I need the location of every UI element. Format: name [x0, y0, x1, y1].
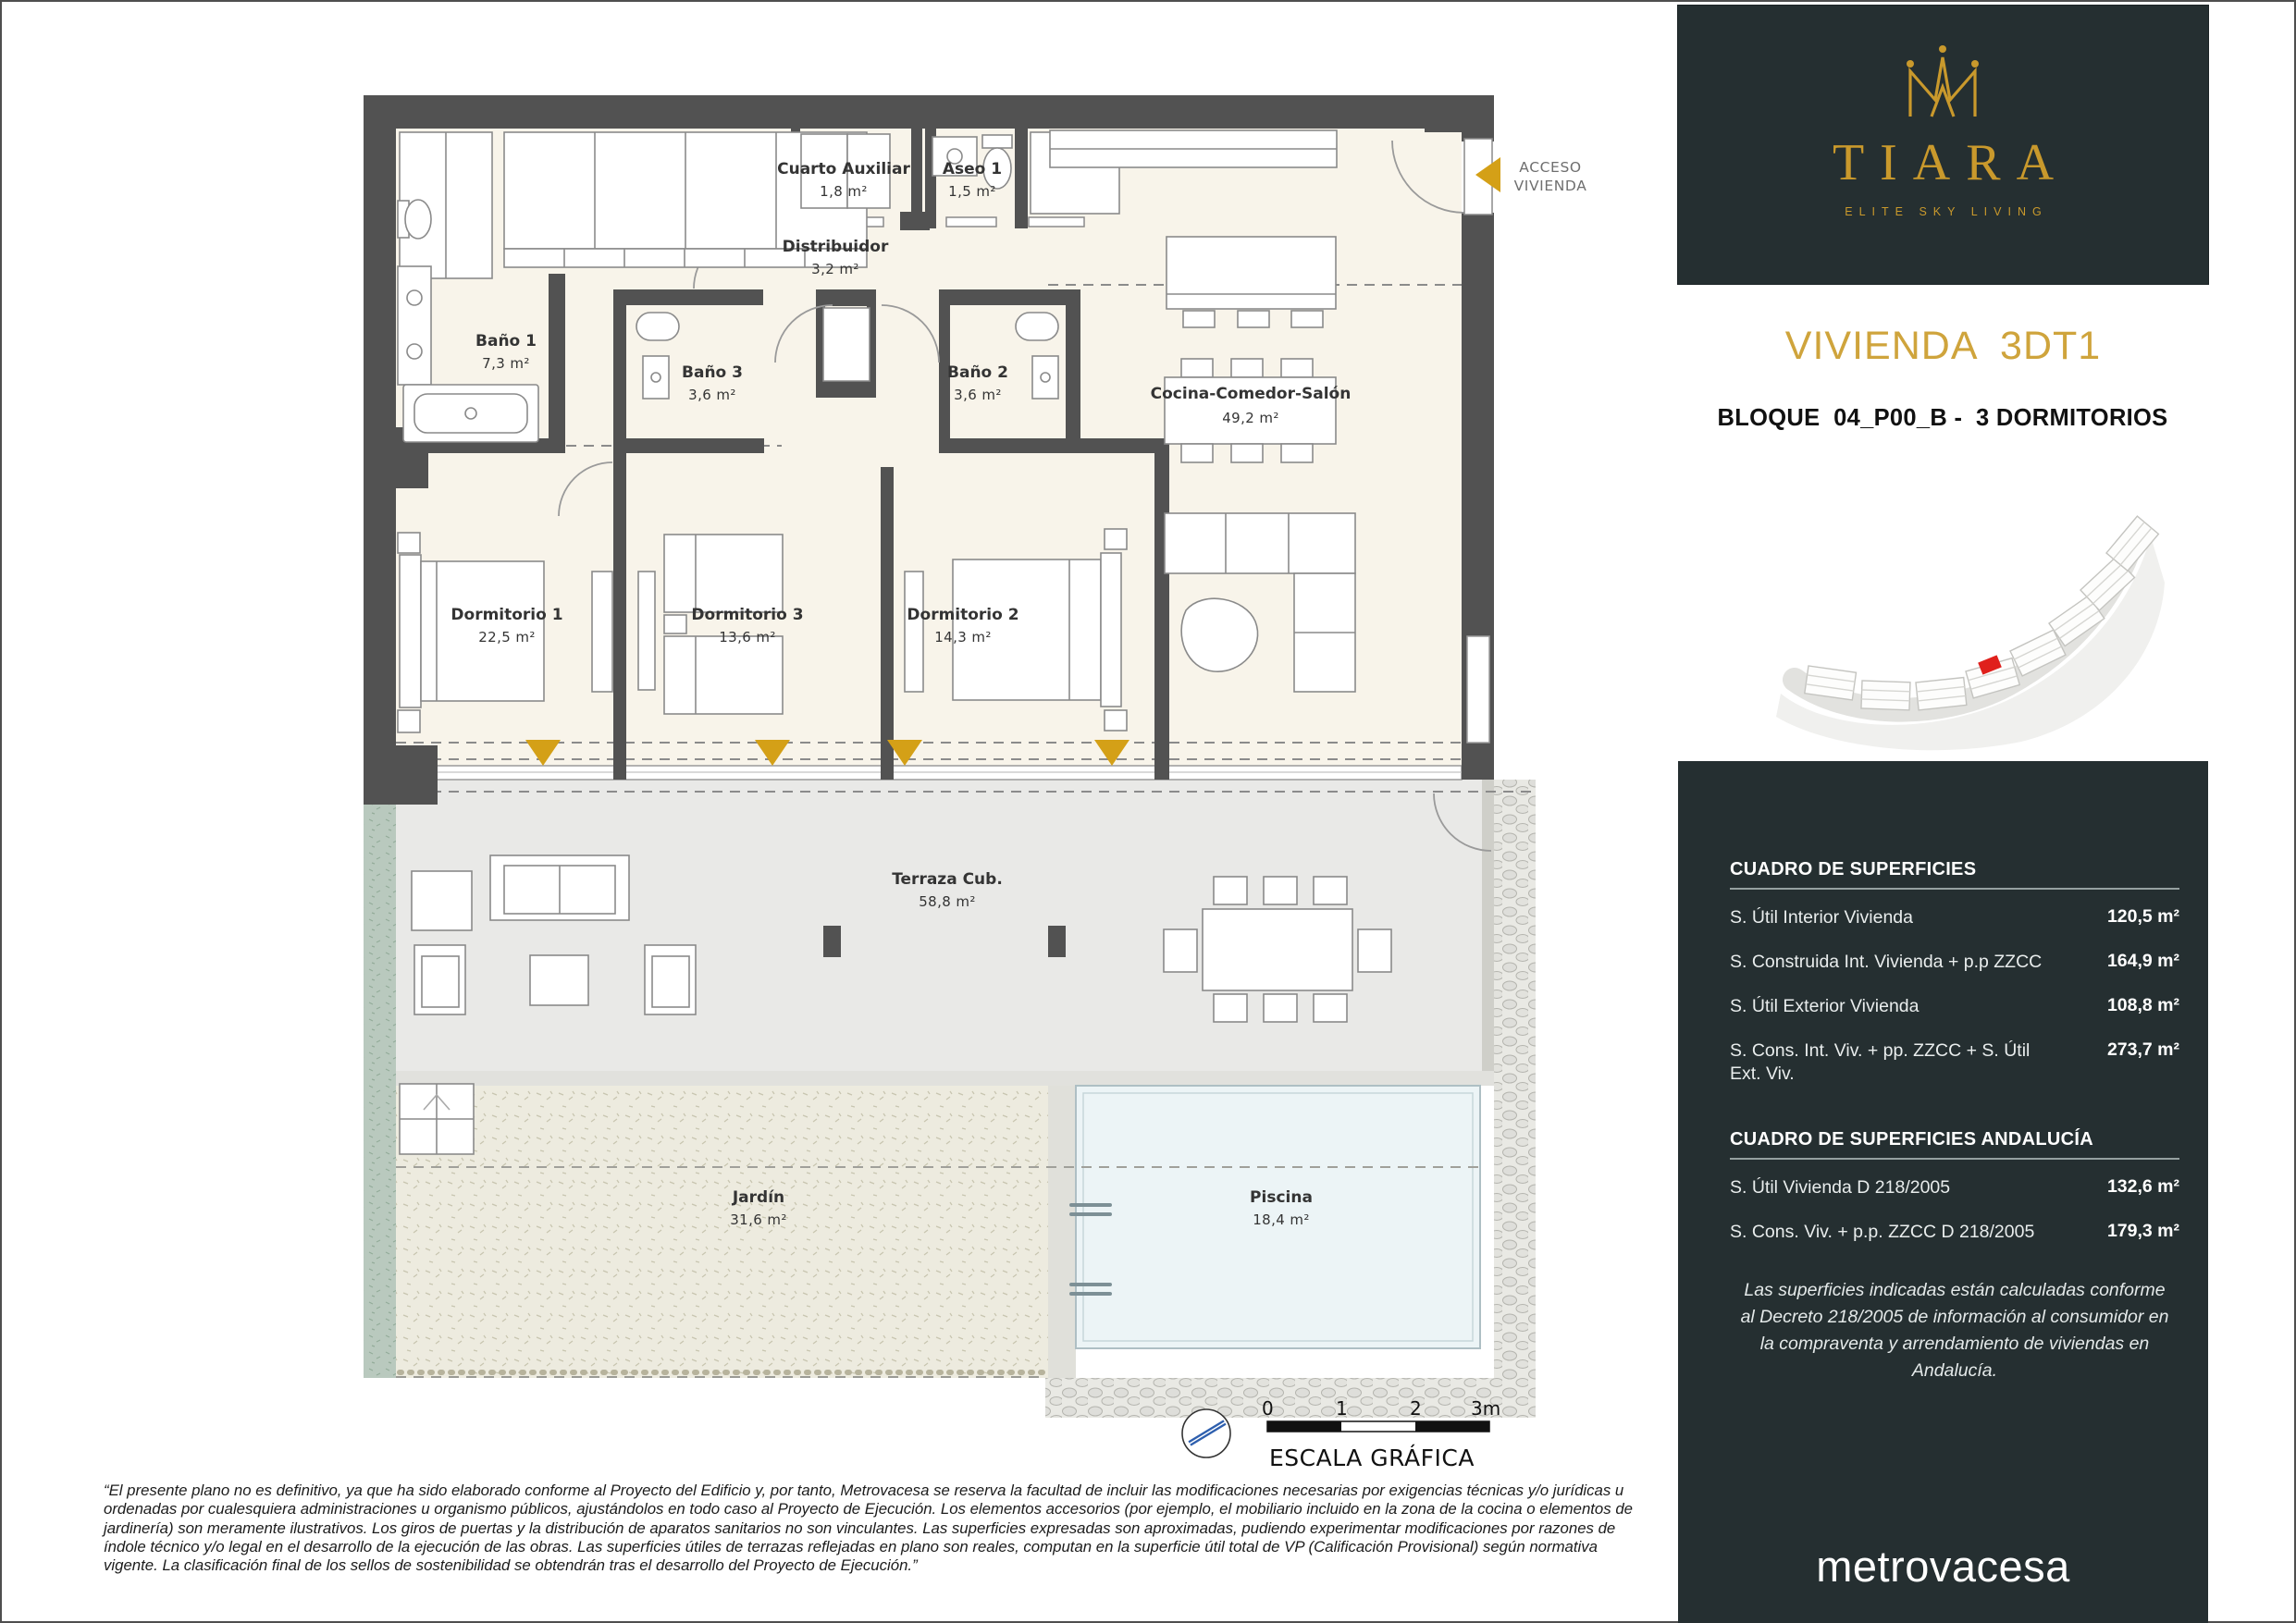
kitchen-counter	[1050, 130, 1337, 167]
svg-text:13,6 m²: 13,6 m²	[719, 629, 776, 646]
svg-text:18,4 m²: 18,4 m²	[1253, 1211, 1310, 1228]
surfaces-andalucia-title: CUADRO DE SUPERFICIES ANDALUCÍA	[1730, 1129, 2179, 1160]
label-jardin: Jardín	[732, 1188, 784, 1207]
svg-text:7,3 m²: 7,3 m²	[482, 355, 530, 372]
svg-text:2: 2	[1410, 1397, 1422, 1420]
label-bano1: Baño 1	[475, 332, 537, 350]
escala-grafica-label: ESCALA GRÁFICA	[1269, 1445, 1475, 1471]
north-compass-icon	[1182, 1409, 1230, 1457]
svg-text:14,3 m²: 14,3 m²	[934, 629, 992, 646]
svg-text:3m: 3m	[1471, 1397, 1500, 1420]
surface-row: S. Útil Exterior Vivienda 108,8 m²	[1730, 995, 2179, 1018]
surface-row: S. Cons. Viv. + p.p. ZZCC D 218/2005 179…	[1730, 1221, 2179, 1244]
svg-text:3,6 m²: 3,6 m²	[688, 387, 736, 403]
surfaces-title: CUADRO DE SUPERFICIES	[1730, 859, 2179, 890]
brand-wordmark: TIARA	[1678, 133, 2208, 192]
surface-row: S. Cons. Int. Viv. + pp. ZZCC + S. Útil …	[1730, 1039, 2179, 1086]
label-aseo1: Aseo 1	[943, 160, 1002, 178]
unit-title: VIVIENDA 3DT1	[1678, 324, 2208, 369]
svg-text:1: 1	[1336, 1397, 1348, 1420]
label-bano2: Baño 2	[947, 363, 1008, 382]
svg-text:31,6 m²: 31,6 m²	[730, 1211, 787, 1228]
decree-note: Las superficies indicadas están calculad…	[1730, 1277, 2179, 1384]
svg-text:1,8 m²: 1,8 m²	[820, 183, 868, 200]
brand-tagline: ELITE SKY LIVING	[1678, 205, 2208, 218]
tiara-logo-panel: TIARA ELITE SKY LIVING	[1678, 6, 2208, 284]
label-cuarto-auxiliar: Cuarto Auxiliar	[777, 160, 910, 178]
svg-text:3,2 m²: 3,2 m²	[811, 261, 859, 277]
surface-row: S. Útil Interior Vivienda 120,5 m²	[1730, 906, 2179, 929]
svg-text:1,5 m²: 1,5 m²	[948, 183, 996, 200]
label-piscina: Piscina	[1250, 1188, 1313, 1207]
label-distribuidor: Distribuidor	[783, 238, 889, 256]
kitchen-island	[1167, 237, 1336, 327]
legal-disclaimer: “El presente plano no es definitivo, ya …	[104, 1482, 1641, 1575]
planter-strip	[364, 805, 396, 1378]
unit-subtitle: BLOQUE 04_P00_B - 3 DORMITORIOS	[1656, 405, 2229, 432]
label-dorm3: Dormitorio 3	[691, 606, 803, 624]
svg-text:49,2 m²: 49,2 m²	[1222, 410, 1279, 426]
surfaces-panel: CUADRO DE SUPERFICIES S. Útil Interior V…	[1678, 761, 2208, 1623]
svg-text:0: 0	[1262, 1397, 1274, 1420]
label-dorm2: Dormitorio 2	[907, 606, 1018, 624]
acceso-label: ACCESO	[1519, 159, 1581, 176]
svg-text:3,6 m²: 3,6 m²	[954, 387, 1002, 403]
svg-text:VIVIENDA: VIVIENDA	[1514, 178, 1587, 194]
site-render	[1744, 499, 2179, 756]
garden	[396, 1086, 1076, 1378]
crown-icon	[1887, 31, 1998, 133]
floor-plan-svg: Baño 1 7,3 m² Cuarto Auxiliar 1,8 m² Ase…	[0, 0, 1647, 1623]
svg-text:58,8 m²: 58,8 m²	[919, 893, 976, 910]
coffee-table	[1181, 598, 1257, 671]
label-terraza: Terraza Cub.	[892, 870, 1003, 889]
garden-table	[400, 1084, 474, 1154]
metrovacesa-logo: metrovacesa	[1678, 1541, 2208, 1592]
window-band	[396, 766, 1462, 780]
svg-text:22,5 m²: 22,5 m²	[478, 629, 536, 646]
label-dorm1: Dormitorio 1	[451, 606, 562, 624]
label-bano3: Baño 3	[682, 363, 743, 382]
shaft-box	[823, 308, 870, 381]
plan-sheet: Baño 1 7,3 m² Cuarto Auxiliar 1,8 m² Ase…	[0, 0, 2296, 1623]
surface-row: S. Construida Int. Vivienda + p.p ZZCC 1…	[1730, 951, 2179, 974]
surface-row: S. Útil Vivienda D 218/2005 132,6 m²	[1730, 1176, 2179, 1199]
label-salon: Cocina-Comedor-Salón	[1151, 385, 1352, 403]
